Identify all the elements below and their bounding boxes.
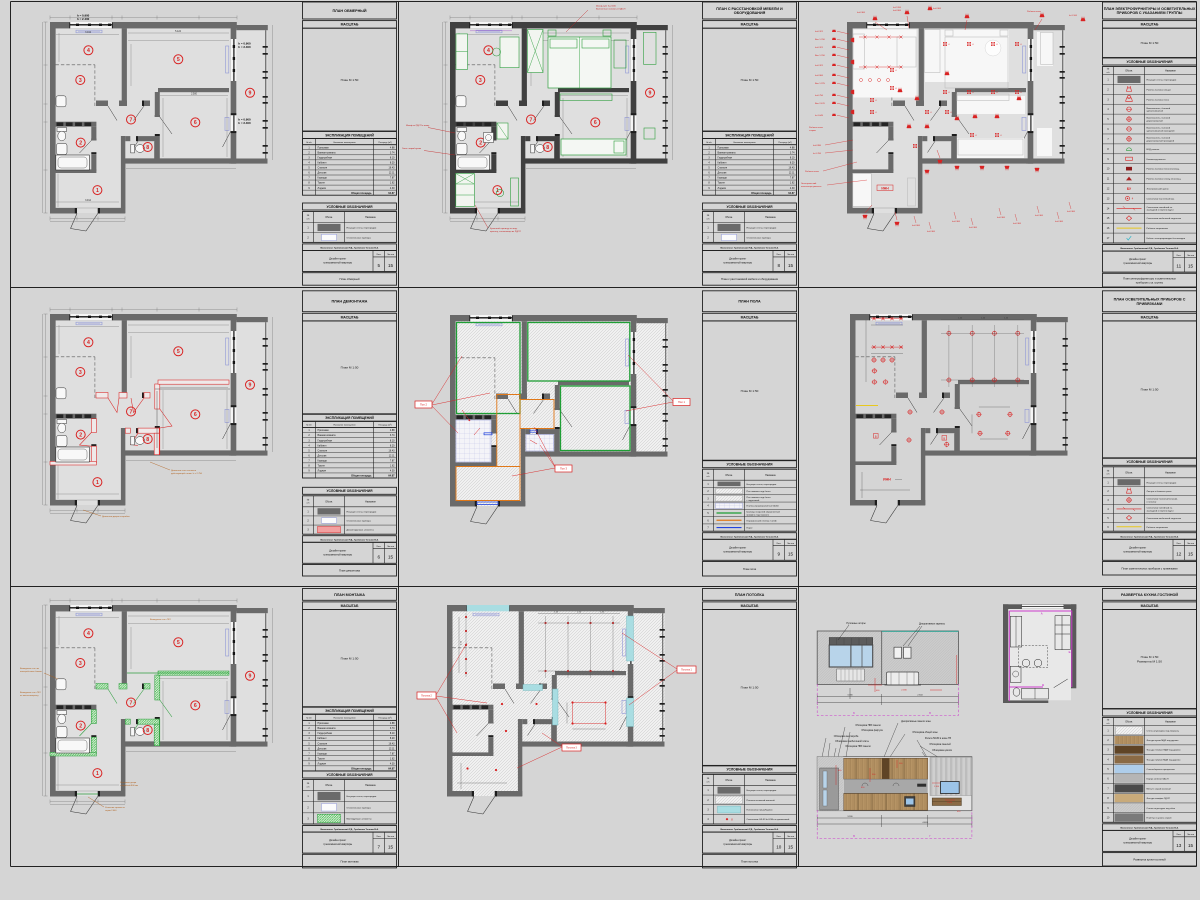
svg-text:Светильник настенный бра: Светильник настенный бра <box>1147 197 1175 200</box>
svg-text:приборов с ук. группы: приборов с ук. группы <box>1136 280 1163 284</box>
svg-text:Общая площадь: Общая площадь <box>351 192 372 195</box>
svg-text:Ванная комната: Ванная комната <box>318 727 337 730</box>
svg-text:ЭКСПЛИКАЦИЯ ПОМЕЩЕНИЙ: ЭКСПЛИКАЦИЯ ПОМЕЩЕНИЙ <box>325 416 374 420</box>
svg-text:УСЛОВНЫЕ ОБОЗНАЧЕНИЯ: УСЛОВНЫЕ ОБОЗНАЧЕНИЯ <box>726 768 773 772</box>
svg-text:Электрический: Электрический <box>801 182 817 185</box>
svg-text:Выключатель, бытовой: Выключатель, бытовой <box>1147 117 1171 120</box>
svg-text:трехкомнатной квартиры: трехкомнатной квартиры <box>1123 550 1152 553</box>
svg-text:h=0.300: h=0.300 <box>997 217 1006 219</box>
svg-text:План М 1:50: План М 1:50 <box>741 389 759 393</box>
svg-text:ВСД розетка: ВСД розетка <box>1147 149 1161 151</box>
svg-text:МАСШТАБ: МАСШТАБ <box>1141 604 1159 608</box>
svg-text:В: В <box>929 711 931 715</box>
svg-text:1.62: 1.62 <box>390 757 395 760</box>
svg-text:МАСШТАБ: МАСШТАБ <box>1141 23 1159 27</box>
svg-text:Лист: Лист <box>376 546 381 548</box>
svg-text:64.87: 64.87 <box>788 192 795 195</box>
svg-text:Розетка бытовая общая: Розетка бытовая общая <box>1147 89 1172 91</box>
svg-text:Отопительные приборы: Отопительные приборы <box>347 237 372 239</box>
svg-text:4.30: 4.30 <box>390 187 395 190</box>
svg-text:РАЗВЕРТКА КУХНИ-ГОСТИНОЙ: РАЗВЕРТКА КУХНИ-ГОСТИНОЙ <box>1121 593 1178 597</box>
svg-text:Лист: Лист <box>776 254 781 256</box>
svg-text:64.87: 64.87 <box>388 768 395 771</box>
svg-text:УСЛОВНЫЕ ОБОЗНАЧЕНИЯ: УСЛОВНЫЕ ОБОЗНАЧЕНИЯ <box>726 205 773 209</box>
svg-text:h=0.300: h=0.300 <box>969 227 978 229</box>
svg-text:7.87: 7.87 <box>790 177 795 180</box>
svg-text:МАСШТАБ: МАСШТАБ <box>741 23 759 27</box>
svg-text:Название: Название <box>365 784 376 787</box>
svg-text:4.88: 4.88 <box>390 722 395 725</box>
svg-text:Демонтируемые элементы: Демонтируемые элементы <box>347 530 375 532</box>
svg-text:Дизайн-проект: Дизайн-проект <box>729 258 747 261</box>
svg-text:7.87: 7.87 <box>390 752 395 755</box>
svg-text:УСЛОВНЫЕ ОБОЗНАЧЕНИЯ: УСЛОВНЫЕ ОБОЗНАЧЕНИЯ <box>1126 460 1173 464</box>
svg-text:Кабинет: Кабинет <box>318 737 328 740</box>
svg-text:Шкаф-купе h=2.400: Шкаф-купе h=2.400 <box>596 5 617 8</box>
svg-text:Ванная комната: Ванная комната <box>318 151 337 154</box>
svg-text:пазогребневых блоков: пазогребневых блоков <box>20 671 43 673</box>
svg-text:4.463: 4.463 <box>922 822 928 824</box>
svg-text:ПЛАН ПОТОЛКА: ПЛАН ПОТОЛКА <box>735 593 765 597</box>
svg-text:Общая площадь: Общая площадь <box>351 475 372 478</box>
svg-text:Общая площадь: Общая площадь <box>351 768 372 771</box>
svg-text:Светильник линейный на: Светильник линейный на <box>1147 206 1173 209</box>
svg-text:Выбленные полини из ЛДСП: Выбленные полини из ЛДСП <box>596 9 626 11</box>
svg-text:Дизайн-проект: Дизайн-проект <box>1129 258 1147 261</box>
svg-text:п/п: п/п <box>1107 723 1110 725</box>
svg-text:Название: Название <box>765 216 776 219</box>
svg-text:12: 12 <box>1176 552 1182 557</box>
svg-text:Коридор: Коридор <box>318 459 328 462</box>
svg-text:h=0.300: h=0.300 <box>927 231 936 233</box>
svg-text:Возведение стен ГКЛ: Возведение стен ГКЛ <box>150 619 171 621</box>
svg-text:h=0.900: h=0.900 <box>912 225 921 227</box>
svg-text:План обмерный: План обмерный <box>340 277 360 281</box>
svg-text:Лоджия: Лоджия <box>318 762 327 765</box>
svg-text:Дизайн-проект: Дизайн-проект <box>1129 837 1147 840</box>
svg-text:Дизайн-проект: Дизайн-проект <box>329 839 347 842</box>
svg-text:Монтируемые элементы: Монтируемые элементы <box>347 818 372 820</box>
svg-text:п/п: п/п <box>307 503 310 505</box>
svg-text:9: 9 <box>777 552 780 557</box>
svg-text:Лист: Лист <box>776 543 781 545</box>
svg-text:B: B <box>875 434 877 438</box>
svg-text:h=0.900: h=0.900 <box>933 8 942 10</box>
svg-text:План М 1:50: План М 1:50 <box>741 78 759 82</box>
svg-text:Спальня: Спальня <box>318 449 328 452</box>
svg-text:h=0.321: h=0.321 <box>815 31 824 33</box>
svg-text:h=0.300: h=0.300 <box>1055 221 1064 223</box>
svg-text:№ п/п: № п/п <box>706 141 712 144</box>
svg-text:Площадь (м²): Площадь (м²) <box>378 141 391 144</box>
svg-text:ОБОРУДОВАНИЯ: ОБОРУДОВАНИЯ <box>734 11 766 15</box>
svg-text:Коридор: Коридор <box>718 177 728 180</box>
svg-text:3.74: 3.74 <box>390 434 395 437</box>
svg-text:Выполнили: Грибановский Р.Д.,: Выполнили: Грибановский Р.Д., Грибанова … <box>1120 247 1179 250</box>
svg-text:4.30: 4.30 <box>390 762 395 765</box>
svg-text:Кухонный гарнитур по инд.: Кухонный гарнитур по инд. <box>490 227 518 230</box>
svg-text:МАСШТАБ: МАСШТАБ <box>1141 315 1159 319</box>
svg-text:Демонтаж двери и коробки: Демонтаж двери и коробки <box>102 516 130 518</box>
svg-text:Листов: Листов <box>787 254 795 256</box>
svg-text:Общая площадь: Общая площадь <box>751 192 772 195</box>
svg-text:Лист: Лист <box>776 836 781 838</box>
svg-text:План монтажа: План монтажа <box>340 859 359 863</box>
svg-text:Стена штукатурка под покраску: Стена штукатурка под покраску <box>1147 730 1180 732</box>
svg-text:Спальня: Спальня <box>318 167 328 170</box>
svg-text:Рабочее напряжение: Рабочее напряжение <box>1147 228 1169 230</box>
svg-text:Лист: Лист <box>376 254 381 256</box>
svg-text:по металлокаркасу: по металлокаркасу <box>20 695 39 697</box>
svg-text:в потолок: в потолок <box>1147 501 1157 503</box>
svg-text:Название помещения: Название помещения <box>333 718 356 720</box>
svg-text:Лоджия: Лоджия <box>318 470 327 473</box>
svg-text:h=0.300: h=0.300 <box>1067 211 1076 213</box>
svg-text:ПЛАН С РАССТАНОВКОЙ МЕБЕЛИ И: ПЛАН С РАССТАНОВКОЙ МЕБЕЛИ И <box>716 7 783 11</box>
svg-text:Коридор: Коридор <box>318 177 328 180</box>
svg-text:4.88: 4.88 <box>390 429 395 432</box>
svg-text:3.74: 3.74 <box>790 151 795 154</box>
svg-text:h=0.321: h=0.321 <box>815 47 824 49</box>
svg-text:Вкл 1.225: Вкл 1.225 <box>815 83 826 85</box>
svg-text:В: В <box>853 834 855 838</box>
svg-text:10: 10 <box>776 845 782 850</box>
svg-text:12.11: 12.11 <box>389 454 395 457</box>
svg-text:16.43: 16.43 <box>389 167 396 170</box>
svg-text:15: 15 <box>388 263 394 268</box>
svg-text:h=0.990: h=0.990 <box>813 145 822 147</box>
svg-text:Выключатель, бытовой: Выключатель, бытовой <box>1147 137 1171 140</box>
svg-text:Розетка бытовая сбоку, влагоза: Розетка бытовая сбоку, влагозащ. <box>1147 179 1182 181</box>
svg-text:МАСШТАБ: МАСШТАБ <box>741 315 759 319</box>
svg-text:15: 15 <box>1188 264 1194 269</box>
svg-text:ЭКСПЛИКАЦИЯ ПОМЕЩЕНИЙ: ЭКСПЛИКАЦИЯ ПОМЕЩЕНИЙ <box>325 709 374 713</box>
svg-text:1.100: 1.100 <box>934 786 940 788</box>
svg-text:Облицовка общей зоны: Облицовка общей зоны <box>912 731 938 734</box>
svg-text:Гардеробная: Гардеробная <box>718 156 733 159</box>
svg-text:Несущие стены, перегородки: Несущие стены, перегородки <box>747 484 778 486</box>
svg-text:трехкомнатной квартиры: трехкомнатной квартиры <box>1123 262 1152 265</box>
svg-text:Дизайн-проект: Дизайн-проект <box>1129 546 1147 549</box>
svg-text:ПЛАН МОНТАЖА: ПЛАН МОНТАЖА <box>334 593 365 597</box>
svg-text:Название помещения: Название помещения <box>333 142 356 144</box>
svg-text:Обозн.: Обозн. <box>325 784 333 787</box>
svg-text:Светильник точечный встраив.: Светильник точечный встраив. <box>1147 498 1179 501</box>
svg-text:двухклавишный: двухклавишный <box>1147 120 1164 123</box>
svg-text:Лист: Лист <box>1176 834 1181 836</box>
svg-text:4.88: 4.88 <box>790 146 795 149</box>
svg-text:Прихожая: Прихожая <box>318 146 330 149</box>
svg-text:закладной в нижнем ярусе: закладной в нижнем ярусе <box>1147 209 1175 212</box>
svg-text:Рабочая зона: Рабочая зона <box>809 127 824 129</box>
svg-text:Обозн.: Обозн. <box>325 216 333 219</box>
svg-text:h=0.750: h=0.750 <box>815 95 824 97</box>
svg-text:проекту, столешница из ЛДСП: проекту, столешница из ЛДСП <box>490 231 521 233</box>
svg-text:Розетка бытовая блок влагозащ.: Розетка бытовая блок влагозащ. <box>1147 169 1180 171</box>
svg-text:Светильник GX-53 h=3.5Вт встра: Светильник GX-53 h=3.5Вт встраиваемый <box>747 818 790 821</box>
svg-text:Листов: Листов <box>387 546 395 548</box>
svg-text:7.87: 7.87 <box>390 177 395 180</box>
svg-text:16.43: 16.43 <box>789 167 796 170</box>
svg-text:ПЛАН ЭЛЕКТРОФУРНИТУРЫ И ОСВЕТИ: ПЛАН ЭЛЕКТРОФУРНИТУРЫ И ОСВЕТИТЕЛЬНЫХ <box>1104 7 1196 11</box>
svg-text:Демонтаж стен согласно: Демонтаж стен согласно <box>171 470 197 472</box>
svg-text:Название: Название <box>1165 721 1176 724</box>
svg-text:МАСШТАБ: МАСШТАБ <box>741 604 759 608</box>
svg-text:Лист: Лист <box>1176 255 1181 257</box>
svg-text:Развертка кухни-гостиной: Развертка кухни-гостиной <box>1133 858 1166 862</box>
svg-text:ПЛАН ДЕМОНТАЖА: ПЛАН ДЕМОНТАЖА <box>332 300 368 304</box>
svg-text:трехкомнатной квартиры: трехкомнатной квартиры <box>1123 841 1152 844</box>
svg-text:трехкомнатной квартиры: трехкомнатной квартиры <box>723 843 752 846</box>
svg-text:Несущие стены, перегородки: Несущие стены, перегородки <box>747 227 778 229</box>
svg-text:Кабинет: Кабинет <box>318 444 328 447</box>
svg-text:Рабочее напряжение: Рабочее напряжение <box>1147 527 1169 529</box>
svg-text:Название: Название <box>1165 472 1176 475</box>
svg-text:профиль под порожек: профиль под порожек <box>747 513 769 516</box>
svg-text:В: В <box>1042 683 1044 687</box>
svg-text:УСЛОВНЫЕ ОБОЗНАЧЕНИЯ: УСЛОВНЫЕ ОБОЗНАЧЕНИЯ <box>1126 60 1173 64</box>
svg-text:Граница покрытий обрамленный: Граница покрытий обрамленный <box>747 511 781 514</box>
svg-text:закладной в нижнем ярусе: закладной в нижнем ярусе <box>1147 509 1175 512</box>
svg-text:Обозн.: Обозн. <box>725 474 733 477</box>
svg-text:3.180: 3.180 <box>847 695 853 697</box>
svg-text:Облицовка панелей: Облицовка панелей <box>929 743 951 746</box>
svg-text:Несущие стены, перегородки: Несущие стены, перегородки <box>347 796 378 798</box>
svg-text:3.74: 3.74 <box>390 727 395 730</box>
svg-text:Вкл 1.760: Вкл 1.760 <box>815 55 826 57</box>
svg-text:№ п/п: № п/п <box>306 141 312 144</box>
svg-text:15: 15 <box>788 845 794 850</box>
svg-text:Гардеробная: Гардеробная <box>318 156 333 159</box>
svg-text:Несущие стены, перегородки: Несущие стены, перегородки <box>347 511 378 513</box>
svg-text:Коридор: Коридор <box>318 752 328 755</box>
svg-text:Потолок натяжной матовый: Потолок натяжной матовый <box>747 799 776 802</box>
svg-text:Фасады нижние МДФ под дерево: Фасады нижние МДФ под дерево <box>1147 758 1182 761</box>
svg-text:Детская: Детская <box>718 172 728 175</box>
svg-text:Плитка керамогранитная 60х60: Плитка керамогранитная 60х60 <box>747 506 780 508</box>
svg-text:h=0.321: h=0.321 <box>815 65 824 67</box>
svg-text:1.62: 1.62 <box>390 465 395 468</box>
svg-text:Стены штукатурка под обои: Стены штукатурка под обои <box>1147 808 1176 810</box>
svg-text:Название: Название <box>365 501 376 504</box>
svg-text:Потолок 1: Потолок 1 <box>681 670 692 672</box>
svg-text:трехкомнатной квартиры: трехкомнатной квартиры <box>723 550 752 553</box>
svg-text:Обозн.: Обозн. <box>325 501 333 504</box>
svg-text:Пол 1: Пол 1 <box>678 400 685 404</box>
svg-text:Дизайн-проект: Дизайн-проект <box>729 546 747 549</box>
svg-text:Усиление проема по: Усиление проема по <box>105 807 126 809</box>
svg-text:Выполнили: Грибановский Р.Д.,: Выполнили: Грибановский Р.Д., Грибанова … <box>320 538 379 541</box>
svg-text:ПРИВЯЗКАМИ: ПРИВЯЗКАМИ <box>1137 302 1163 306</box>
svg-text:Площадь (м²): Площадь (м²) <box>378 424 391 427</box>
svg-text:Светильник мебельной подсветки: Светильник мебельной подсветки <box>1147 517 1182 520</box>
svg-text:64.87: 64.87 <box>388 475 395 478</box>
svg-text:Обозн.: Обозн. <box>1125 472 1133 475</box>
svg-text:Облицовка ПВХ панели: Облицовка ПВХ панели <box>855 725 881 727</box>
svg-text:План М 1:50: План М 1:50 <box>1141 388 1159 392</box>
svg-text:п/п: п/п <box>307 786 310 788</box>
svg-text:План М 1:50: План М 1:50 <box>1141 655 1159 659</box>
svg-text:с коробкой 800 мм: с коробкой 800 мм <box>120 784 139 787</box>
svg-text:Прихожая: Прихожая <box>318 722 330 725</box>
svg-text:Обозн.: Обозн. <box>1125 721 1133 724</box>
svg-text:h=1.100: h=1.100 <box>1069 15 1078 17</box>
svg-text:Выполнили: Грибановский Р.Д.,: Выполнили: Грибановский Р.Д., Грибанова … <box>1120 826 1179 829</box>
svg-text:Декоративные карнизы: Декоративные карнизы <box>919 623 945 626</box>
svg-text:8.20: 8.20 <box>390 162 395 165</box>
svg-text:План электрофурнитуры и освети: План электрофурнитуры и осветительных <box>1123 276 1176 280</box>
svg-text:4.30: 4.30 <box>790 187 795 190</box>
svg-text:Спальня: Спальня <box>718 167 728 170</box>
svg-text:h=0.300: h=0.300 <box>952 221 961 223</box>
svg-text:трехкомнатной квартиры: трехкомнатной квартиры <box>323 262 352 265</box>
svg-text:8.10: 8.10 <box>390 732 395 735</box>
svg-text:Гардеробная: Гардеробная <box>318 439 333 442</box>
svg-text:УСЛОВНЫЕ ОБОЗНАЧЕНИЯ: УСЛОВНЫЕ ОБОЗНАЧЕНИЯ <box>326 773 373 777</box>
svg-text:h=0.300: h=0.300 <box>857 12 866 14</box>
svg-text:Отопительные приборы: Отопительные приборы <box>347 521 372 523</box>
svg-text:15: 15 <box>788 263 794 268</box>
svg-text:Название: Название <box>365 216 376 219</box>
svg-text:Развертка М 1:50: Развертка М 1:50 <box>1137 660 1162 664</box>
svg-text:п/п: п/п <box>1107 72 1110 74</box>
svg-text:Потолок 3: Потолок 3 <box>566 748 577 750</box>
svg-text:п/п: п/п <box>707 781 710 783</box>
svg-text:Б: Б <box>853 711 855 715</box>
svg-text:Ванная комната: Ванная комната <box>718 151 737 154</box>
svg-text:15: 15 <box>1188 843 1194 848</box>
svg-text:Листов: Листов <box>1187 543 1195 545</box>
svg-text:Листов: Листов <box>387 254 395 256</box>
svg-text:трехкомнатной квартиры: трехкомнатной квартиры <box>323 843 352 846</box>
svg-text:п/п: п/п <box>1107 474 1110 476</box>
svg-text:Б: Б <box>1069 650 1071 654</box>
svg-text:Несущие стены, перегородки: Несущие стены, перегородки <box>347 227 378 229</box>
svg-text:Листов: Листов <box>787 543 795 545</box>
svg-text:13: 13 <box>1176 843 1182 848</box>
svg-text:8.20: 8.20 <box>390 444 395 447</box>
svg-text:полотенцесушитель: полотенцесушитель <box>801 186 822 188</box>
svg-text:Листов: Листов <box>1187 834 1195 836</box>
svg-text:серии 2.440: серии 2.440 <box>105 810 117 812</box>
svg-text:Прихожая: Прихожая <box>718 146 730 149</box>
svg-text:Выключатель, бытовой: Выключатель, бытовой <box>1147 127 1171 130</box>
svg-text:Конвектор-розетка: Конвектор-розетка <box>1147 159 1167 161</box>
svg-text:Обозн.: Обозн. <box>725 216 733 219</box>
svg-text:Выполнили: Грибановский Р.Д.,: Выполнили: Грибановский Р.Д., Грибанова … <box>320 247 379 250</box>
svg-text:1.800: 1.800 <box>947 802 953 804</box>
svg-text:Площадь (м²): Площадь (м²) <box>778 141 791 144</box>
svg-text:Туалет: Туалет <box>718 182 726 185</box>
svg-text:Фасады кухни МДФ под дерево: Фасады кухни МДФ под дерево <box>1147 739 1180 742</box>
svg-text:ПЛАН ОБМЕРНЫЙ: ПЛАН ОБМЕРНЫЙ <box>332 9 366 13</box>
svg-text:7: 7 <box>377 845 380 850</box>
svg-text:Лоджия: Лоджия <box>718 187 727 190</box>
svg-text:Потолок 2: Потолок 2 <box>421 696 432 698</box>
svg-text:Обозн.: Обозн. <box>1125 70 1133 73</box>
svg-text:h=1.760: h=1.760 <box>813 153 822 155</box>
svg-text:12.11: 12.11 <box>789 172 795 175</box>
svg-text:Корпус мебели ЛДСП: Корпус мебели ЛДСП <box>1147 779 1169 781</box>
svg-text:Туалет: Туалет <box>318 465 326 468</box>
svg-text:Установка двери: Установка двери <box>120 782 137 784</box>
svg-text:11: 11 <box>1176 264 1181 269</box>
svg-text:Гардеробная: Гардеробная <box>318 732 333 735</box>
svg-text:8.20: 8.20 <box>790 162 795 165</box>
svg-text:B: B <box>943 436 945 440</box>
svg-text:6: 6 <box>377 555 380 560</box>
svg-text:Листов: Листов <box>787 836 795 838</box>
svg-text:Зона стирки/сушки: Зона стирки/сушки <box>402 148 422 150</box>
svg-text:Детская: Детская <box>318 172 328 175</box>
svg-text:16.43: 16.43 <box>389 742 396 745</box>
svg-text:8.20: 8.20 <box>390 737 395 740</box>
svg-text:План демонтажа: План демонтажа <box>339 568 361 572</box>
svg-text:Рулонные шторы: Рулонные шторы <box>846 622 865 625</box>
svg-text:Название помещения: Название помещения <box>733 142 756 144</box>
svg-text:h=0.900: h=0.900 <box>893 10 902 12</box>
svg-text:УСЛОВНЫЕ ОБОЗНАЧЕНИЯ: УСЛОВНЫЕ ОБОЗНАЧЕНИЯ <box>726 463 773 467</box>
svg-text:Пол 3: Пол 3 <box>560 467 567 471</box>
svg-text:План с расстановкой мебели и о: План с расстановкой мебели и оборудовани… <box>721 277 779 281</box>
svg-text:Выполнили: Грибановский Р.Д.,: Выполнили: Грибановский Р.Д., Грибанова … <box>1120 535 1179 538</box>
svg-text:16.43: 16.43 <box>389 449 396 452</box>
svg-text:трехкомнатной квартиры: трехкомнатной квартиры <box>323 553 352 556</box>
svg-text:Фасады темные МДФ под дерево: Фасады темные МДФ под дерево <box>1147 749 1182 752</box>
svg-text:Ванная комната: Ванная комната <box>318 434 337 437</box>
svg-text:План пола: План пола <box>743 567 757 571</box>
svg-text:ЭКСПЛИКАЦИЯ ПОМЕЩЕНИЙ: ЭКСПЛИКАЦИЯ ПОМЕЩЕНИЙ <box>725 133 774 137</box>
svg-text:Название: Название <box>765 474 776 477</box>
svg-text:Пол ламинат над бетон: Пол ламинат над бетон <box>747 497 772 499</box>
svg-text:Пол ламинат над бетон: Пол ламинат над бетон <box>747 491 772 493</box>
svg-text:Выполнили: Грибановский Р.Д.,: Выполнили: Грибановский Р.Д., Грибанова … <box>720 247 779 250</box>
svg-text:15: 15 <box>388 845 394 850</box>
svg-text:Название: Название <box>765 779 776 782</box>
svg-text:h=0.300: h=0.300 <box>1013 223 1022 225</box>
svg-text:Декоративные панели зоны: Декоративные панели зоны <box>901 721 931 723</box>
svg-text:УСЛОВНЫЕ ОБОЗНАЧЕНИЯ: УСЛОВНЫЕ ОБОЗНАЧЕНИЯ <box>326 489 373 493</box>
svg-text:h=0.900: h=0.900 <box>815 75 824 77</box>
svg-text:Металл серый матовый: Металл серый матовый <box>1147 787 1172 790</box>
svg-text:Несущие стены, перегородки: Несущие стены, перегородки <box>1147 79 1178 81</box>
svg-text:План М 1:50: План М 1:50 <box>741 686 759 690</box>
svg-text:Возведение стен ГКЛ: Возведение стен ГКЛ <box>20 692 41 694</box>
svg-text:8.10: 8.10 <box>390 156 395 159</box>
svg-text:п/п: п/п <box>707 218 710 220</box>
svg-text:Облицовка фартука: Облицовка фартука <box>861 729 883 732</box>
svg-text:МАСШТАБ: МАСШТАБ <box>341 315 359 319</box>
svg-text:Облицовка цоколя: Облицовка цоколя <box>932 750 953 752</box>
svg-text:№ п/п: № п/п <box>306 717 312 720</box>
svg-text:Потолочная ниша/Карниз: Потолочная ниша/Карниз <box>747 810 773 812</box>
svg-text:Порог: Порог <box>747 528 753 530</box>
svg-text:Шкаф из ЛДСП в нишу: Шкаф из ЛДСП в нишу <box>406 124 430 127</box>
svg-text:64.87: 64.87 <box>388 192 395 195</box>
svg-text:15: 15 <box>788 552 794 557</box>
svg-text:Лист: Лист <box>1176 543 1181 545</box>
svg-text:Отопительные приборы: Отопительные приборы <box>747 237 772 239</box>
svg-text:Прихожая: Прихожая <box>318 429 330 432</box>
svg-text:Название помещения: Название помещения <box>333 425 356 427</box>
svg-text:Детская: Детская <box>318 747 328 750</box>
svg-text:15: 15 <box>1188 552 1194 557</box>
svg-text:Вкл 2.470: Вкл 2.470 <box>815 103 826 105</box>
svg-text:Название: Название <box>1165 70 1176 73</box>
svg-text:h=1.045: h=1.045 <box>815 115 824 117</box>
svg-text:стирки: стирки <box>809 130 816 132</box>
svg-text:Дизайн-проект: Дизайн-проект <box>729 839 747 842</box>
